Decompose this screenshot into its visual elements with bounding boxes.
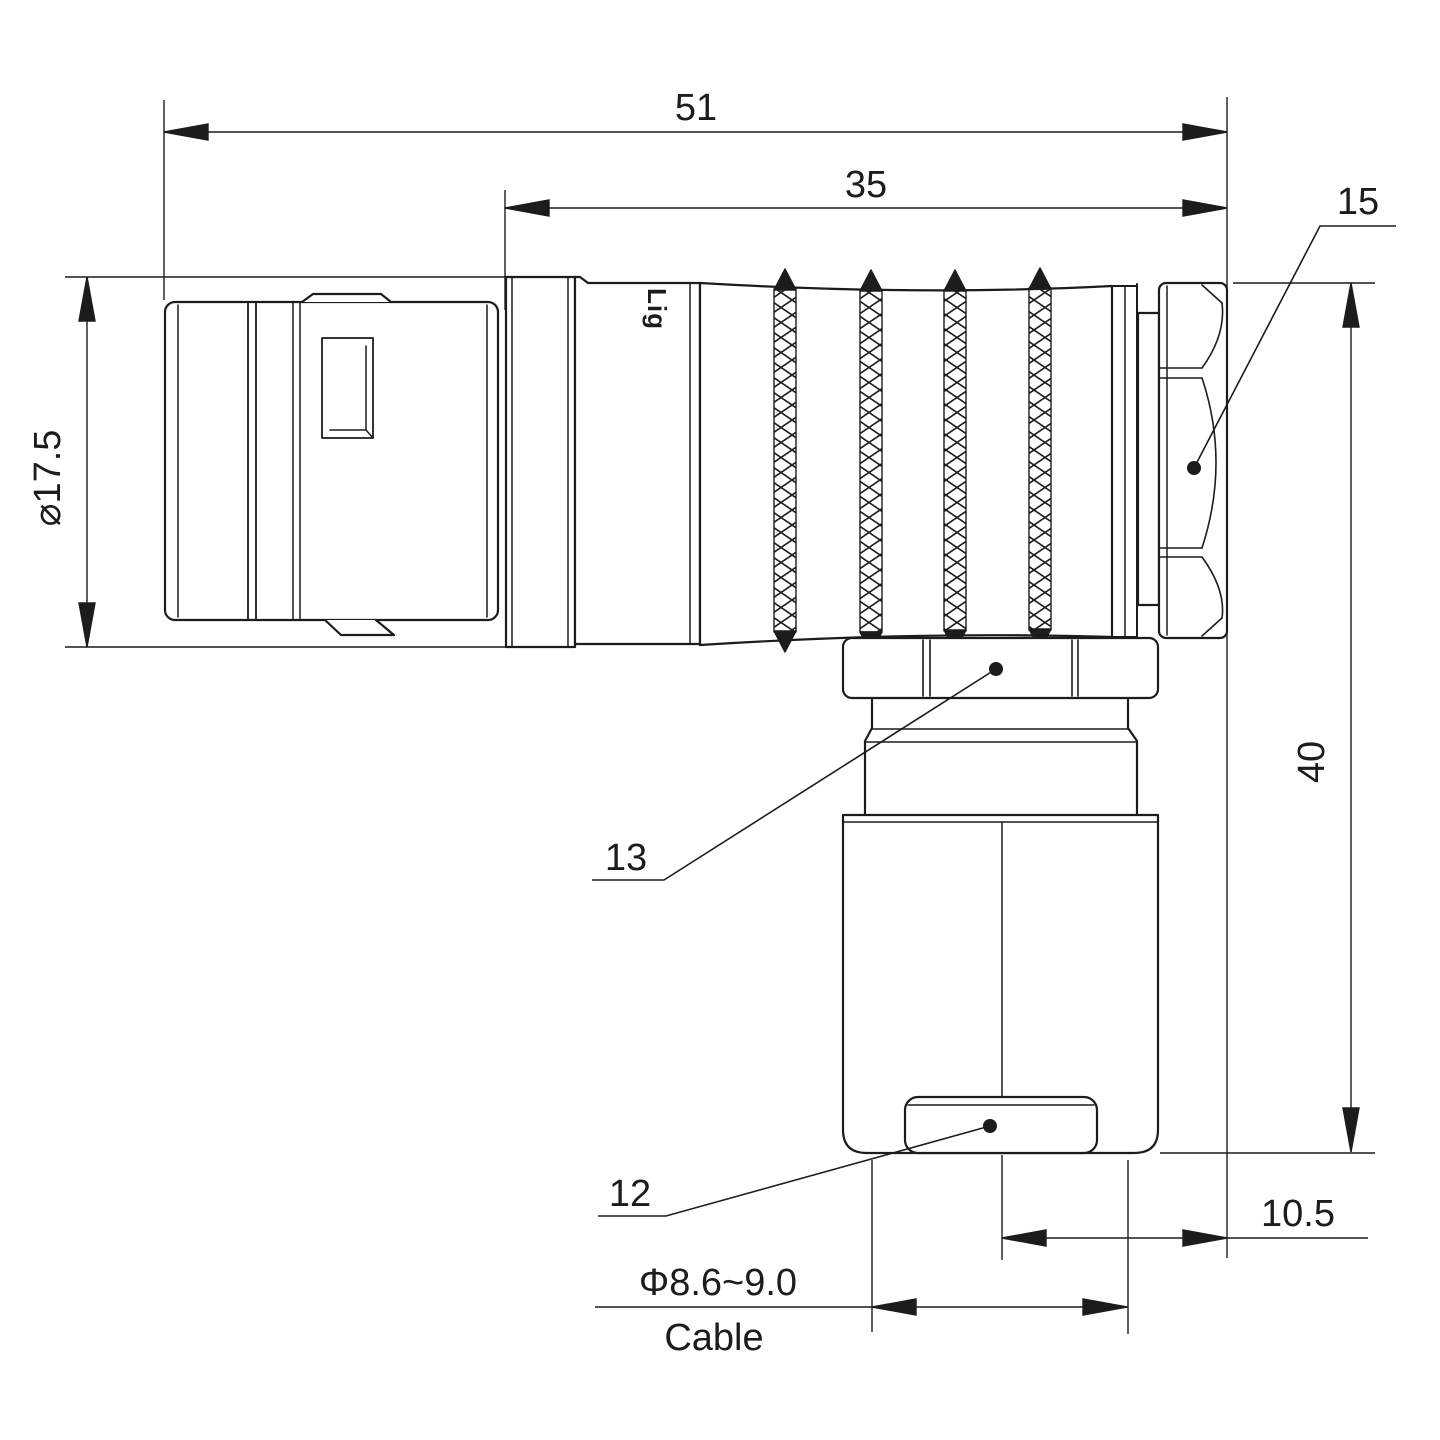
cable-diameter-label: Φ8.6~9.0: [639, 1262, 797, 1304]
callout-13-label: 13: [605, 837, 647, 879]
callout-13-dot: [989, 662, 1003, 676]
dim-35-label: 35: [845, 164, 887, 206]
dim-17-5-label: ⌀17.5: [27, 430, 69, 527]
elbow-neck: [865, 698, 1137, 815]
cable-word-label: Cable: [664, 1317, 763, 1359]
callout-12-label: 12: [609, 1173, 651, 1215]
connector-body: Lig: [165, 268, 1227, 1153]
dim-40-label: 40: [1291, 741, 1333, 783]
brand-mark-vertical: Lig: [642, 288, 672, 330]
connector-drawing-svg: Lightany: [0, 0, 1440, 1440]
dim-51-label: 51: [675, 87, 717, 129]
callout-15-label: 15: [1337, 181, 1379, 223]
boot-cap: [905, 1097, 1097, 1153]
keyway-window: [322, 338, 373, 438]
end-collar: [1138, 313, 1159, 605]
technical-drawing-page: Lightany: [0, 0, 1440, 1440]
latch-top-tab: [302, 294, 391, 302]
dim-10-5-label: 10.5: [1261, 1193, 1335, 1235]
knurled-barrel: [700, 268, 1137, 653]
end-hex-nut: [1159, 283, 1227, 638]
mid-collars: [506, 277, 700, 647]
front-plug-shell: [165, 294, 498, 635]
callout-15-dot: [1187, 461, 1201, 475]
callout-12-dot: [983, 1119, 997, 1133]
cable-boot: [843, 815, 1158, 1153]
